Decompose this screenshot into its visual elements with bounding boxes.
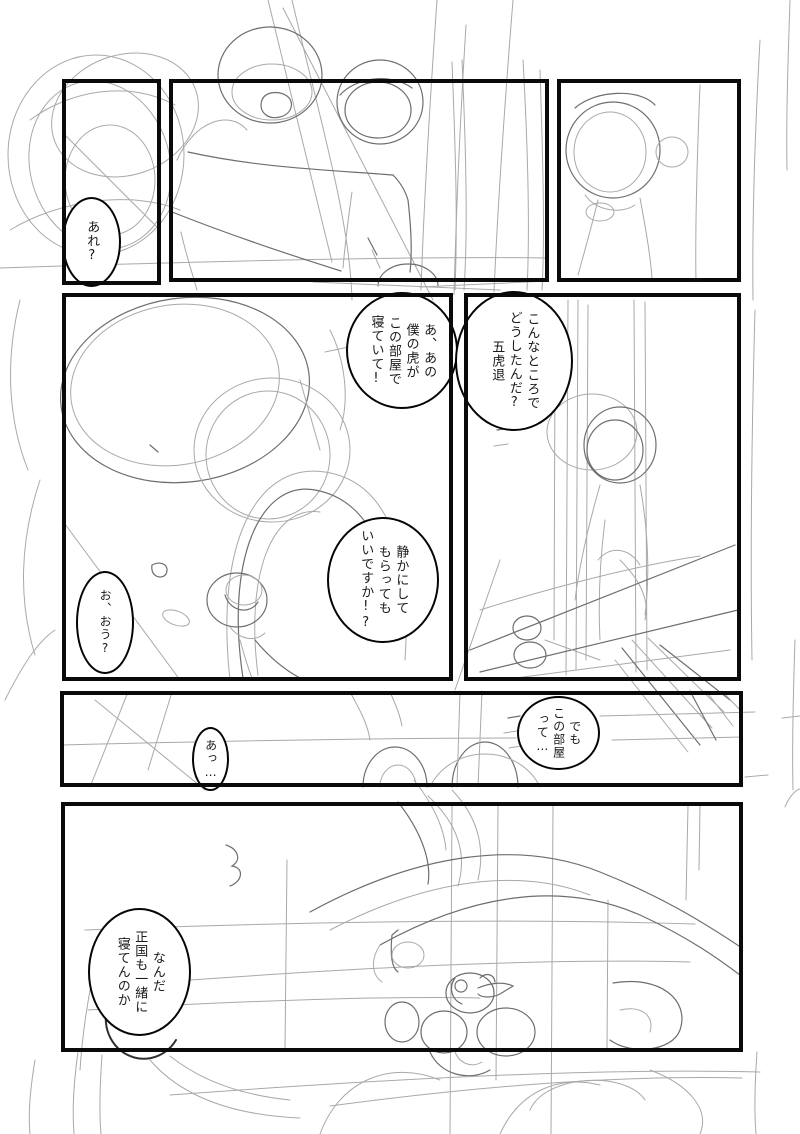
bubble-text-gokotai: こんなところで どうしたんだ? 五虎退: [488, 311, 541, 411]
bubble-text-nanda: なんだ 正国も一緒に 寝てんのか: [113, 930, 166, 1014]
bubble-text-demo-kono-heya: でも この部屋 って…: [534, 707, 583, 759]
bubble-text-shizuka: 静かにして もらっても いいですか!?: [357, 529, 410, 631]
sketch-panel3-head: [566, 0, 790, 300]
speech-bubble-a: あっ…: [192, 727, 229, 791]
speech-bubble-shizuka: 静かにして もらっても いいですか!?: [327, 517, 439, 643]
speech-bubble-demo-kono-heya: でも この部屋 って…: [517, 696, 600, 770]
speech-bubble-are: あれ?: [62, 197, 121, 287]
manga-page: あれ? あ、あの 僕の虎が この部屋で 寝ていて! こんなところで どうしたんだ…: [0, 0, 800, 1134]
speech-bubble-oou: お、おう?: [76, 571, 134, 674]
bubble-text-a: あっ…: [202, 739, 218, 780]
bubble-text-oou: お、おう?: [97, 589, 113, 656]
bubble-text-boku-no-tora: あ、あの 僕の虎が この部屋で 寝ていて!: [367, 315, 437, 387]
sketch-margin-diagonals-top: [268, 0, 513, 300]
speech-bubble-boku-no-tora: あ、あの 僕の虎が この部屋で 寝ていて!: [346, 292, 458, 409]
bubble-text-are: あれ?: [83, 220, 101, 264]
speech-bubble-gokotai: こんなところで どうしたんだ? 五虎退: [455, 291, 573, 431]
speech-bubble-nanda: なんだ 正国も一緒に 寝てんのか: [88, 908, 191, 1036]
sketch-right-margin: [745, 310, 800, 807]
